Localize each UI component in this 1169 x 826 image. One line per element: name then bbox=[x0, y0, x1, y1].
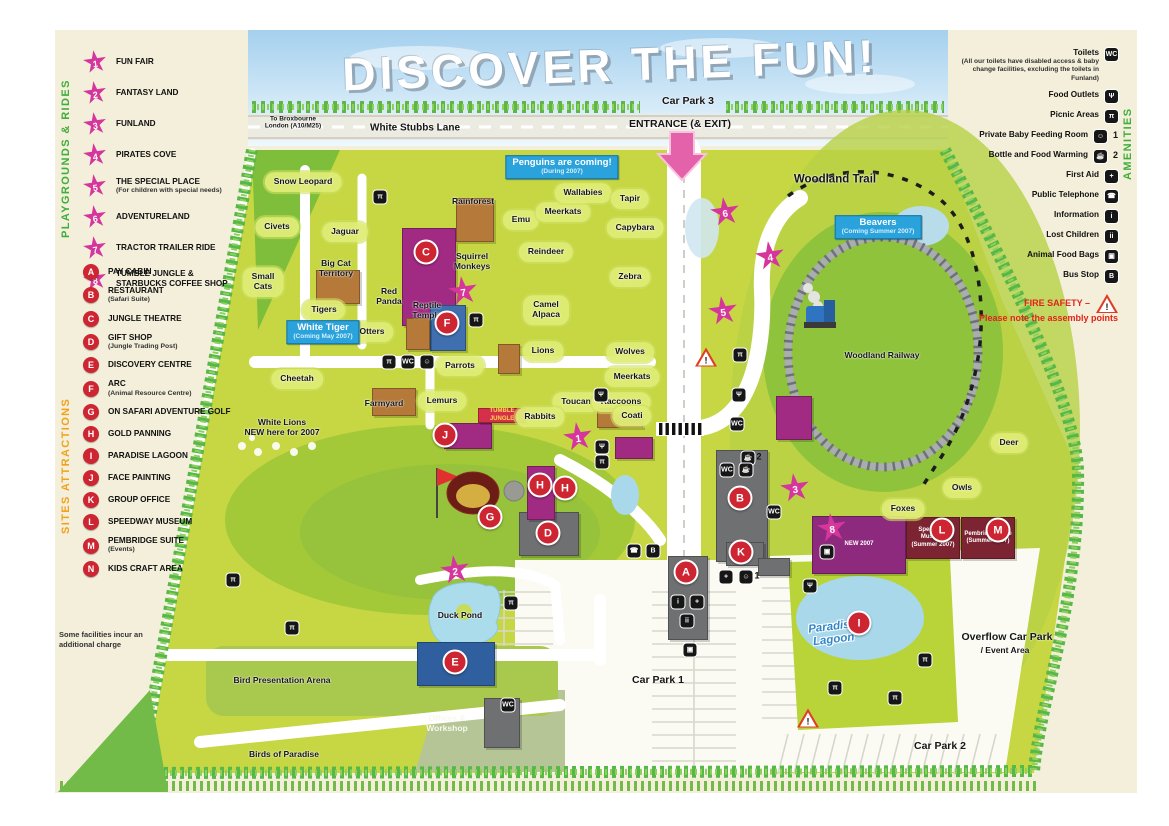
site-marker-d: D bbox=[536, 521, 561, 546]
food-icon: Ψ bbox=[1105, 90, 1118, 103]
map-label-tapir: Tapir bbox=[611, 189, 649, 209]
amenity-label: Picnic Areas bbox=[1050, 110, 1099, 120]
map-label-woodland-trail: Woodland Trail bbox=[794, 173, 876, 186]
toilets-icon: WC bbox=[721, 464, 734, 477]
playground-item-2: 2FANTASY LAND bbox=[83, 81, 243, 105]
map-label-woodland-railway: Woodland Railway bbox=[845, 351, 920, 361]
phone-icon: ☎ bbox=[1105, 190, 1118, 203]
map-label-entrance-exit: ENTRANCE (& EXIT) bbox=[629, 118, 731, 130]
firstaid-icon: + bbox=[720, 571, 733, 584]
playground-item-7: 7TRACTOR TRAILER RIDE bbox=[83, 236, 243, 260]
map-label-emu: Emu bbox=[503, 210, 539, 230]
building-woodland-building bbox=[776, 396, 812, 440]
map-label-lemurs: Lemurs bbox=[418, 391, 467, 411]
lost-icon: ii bbox=[681, 615, 694, 628]
foodbag-icon: ▣ bbox=[1105, 250, 1118, 263]
marker-k-icon: K bbox=[83, 492, 99, 508]
amenity-item-bus-stop: Bus StopB bbox=[948, 270, 1118, 283]
star-2-icon: 2 bbox=[81, 79, 108, 106]
picnic-icon: π bbox=[505, 597, 518, 610]
info-icon: i bbox=[672, 596, 685, 609]
site-label: PAY CABIN bbox=[108, 267, 152, 277]
marker-i-icon: I bbox=[83, 448, 99, 464]
amenity-item-food-outlets: Food OutletsΨ bbox=[948, 90, 1118, 103]
toilets-icon: WC bbox=[402, 356, 415, 369]
marker-l-icon: L bbox=[83, 514, 99, 530]
star-7-icon: 7 bbox=[81, 234, 108, 261]
sites-heading: SITES ATTRACTIONS bbox=[60, 398, 72, 534]
map-label-white-stubbs-lane: White Stubbs Lane bbox=[370, 122, 460, 134]
star-6-icon: 6 bbox=[81, 203, 108, 230]
info-icon: i bbox=[1105, 210, 1118, 223]
picnic-icon: π bbox=[286, 622, 299, 635]
map-label-offices: Offices & Workshop bbox=[426, 714, 467, 734]
site-item-a: APAY CABIN bbox=[83, 264, 243, 280]
map-label-wallabies: Wallabies bbox=[555, 183, 612, 203]
site-label: RESTAURANT (Safari Suite) bbox=[108, 286, 164, 305]
amenity-item-first-aid: First Aid+ bbox=[948, 170, 1118, 183]
map-label-event-area: / Event Area bbox=[981, 646, 1030, 656]
fire-warning-icon: ! bbox=[1096, 294, 1118, 313]
map-label-coati: Coati bbox=[612, 406, 651, 426]
site-item-d: DGIFT SHOP (Jungle Trading Post) bbox=[83, 333, 243, 352]
bus-icon: B bbox=[1105, 270, 1118, 283]
sign-beavers: Beavers(Coming Summer 2007) bbox=[835, 215, 922, 239]
toilets-icon: WC bbox=[502, 699, 515, 712]
marker-c-icon: C bbox=[83, 311, 99, 327]
site-marker-m: M bbox=[986, 518, 1011, 543]
site-label: FACE PAINTING bbox=[108, 473, 171, 483]
amenity-label: Private Baby Feeding Room bbox=[979, 130, 1088, 140]
marker-e-icon: E bbox=[83, 357, 99, 373]
amenity-label: Public Telephone bbox=[1032, 190, 1099, 200]
fire-safety-title: FIRE SAFETY – bbox=[1024, 298, 1090, 308]
picnic-icon: π bbox=[596, 456, 609, 469]
site-label: PEMBRIDGE SUITE (Events) bbox=[108, 536, 184, 555]
firstaid-icon: + bbox=[1105, 170, 1118, 183]
fire-safety-note: FIRE SAFETY –! Please note the assembly … bbox=[948, 294, 1118, 325]
amenity-item-public-telephone: Public Telephone☎ bbox=[948, 190, 1118, 203]
amenity-number: 1 bbox=[1113, 130, 1118, 140]
site-label: ARC (Animal Resource Centre) bbox=[108, 379, 191, 398]
amenities-heading: AMENITIES bbox=[1122, 108, 1134, 181]
playground-item-6: 6ADVENTURELAND bbox=[83, 205, 243, 229]
map-label-meerkats: Meerkats bbox=[605, 367, 660, 387]
map-label-civets: Civets bbox=[255, 217, 299, 237]
chip-number: 2 bbox=[757, 453, 762, 462]
marker-d-icon: D bbox=[83, 334, 99, 350]
map-label-car-park-2: Car Park 2 bbox=[914, 740, 966, 752]
building-reptile-house bbox=[406, 318, 430, 350]
map-label-duck-pond: Duck Pond bbox=[438, 611, 482, 621]
picnic-icon: π bbox=[374, 191, 387, 204]
firstaid-icon: + bbox=[691, 596, 704, 609]
amenity-label: Animal Food Bags bbox=[1027, 250, 1099, 260]
map-label-car-park-1: Car Park 1 bbox=[632, 674, 684, 686]
map-label-white-lions: White Lions NEW here for 2007 bbox=[244, 418, 319, 438]
playground-label: FUNLAND bbox=[116, 119, 156, 129]
playground-label: ADVENTURELAND bbox=[116, 212, 190, 222]
picnic-icon: π bbox=[1105, 110, 1118, 123]
site-marker-a: A bbox=[674, 560, 699, 585]
legend-left: PLAYGROUNDS & RIDES 1FUN FAIR2FANTASY LA… bbox=[57, 42, 247, 772]
site-label: KIDS CRAFT AREA bbox=[108, 564, 183, 574]
star-marker-2: 2 bbox=[438, 553, 472, 587]
map-label-big-cat: Big Cat Territory bbox=[319, 259, 353, 279]
site-label: JUNGLE THEATRE bbox=[108, 314, 182, 324]
site-label: DISCOVERY CENTRE bbox=[108, 360, 192, 370]
site-label: PARADISE LAGOON bbox=[108, 451, 188, 461]
site-item-l: LSPEEDWAY MUSEUM bbox=[83, 514, 243, 530]
marker-g-icon: G bbox=[83, 404, 99, 420]
site-label: GOLD PANNING bbox=[108, 429, 171, 439]
amenity-number: 2 bbox=[1113, 150, 1118, 160]
site-label: ON SAFARI ADVENTURE GOLF bbox=[108, 407, 231, 417]
amenity-item-toilets: Toilets(All our toilets have disabled ac… bbox=[948, 48, 1118, 83]
playground-label: PIRATES COVE bbox=[116, 150, 176, 160]
picnic-icon: π bbox=[734, 349, 747, 362]
star-marker-4: 4 bbox=[753, 239, 787, 273]
site-item-n: NKIDS CRAFT AREA bbox=[83, 561, 243, 577]
marker-a-icon: A bbox=[83, 264, 99, 280]
amenity-label: First Aid bbox=[1066, 170, 1099, 180]
site-item-j: JFACE PAINTING bbox=[83, 470, 243, 486]
amenity-label: Bus Stop bbox=[1063, 270, 1099, 280]
toilets-icon: WC bbox=[1105, 48, 1118, 61]
site-item-c: CJUNGLE THEATRE bbox=[83, 311, 243, 327]
map-label-snow-leopard: Snow Leopard bbox=[265, 172, 342, 192]
playground-item-1: 1FUN FAIR bbox=[83, 50, 243, 74]
map-label-cheetah: Cheetah bbox=[271, 369, 323, 389]
amenities-list: Toilets(All our toilets have disabled ac… bbox=[948, 48, 1118, 290]
site-label: GROUP OFFICE bbox=[108, 495, 170, 505]
map-label-to-broxbourne: To Broxbourne London (A10/M25) bbox=[265, 116, 321, 131]
site-item-e: EDISCOVERY CENTRE bbox=[83, 357, 243, 373]
playground-item-5: 5THE SPECIAL PLACE(For children with spe… bbox=[83, 174, 243, 198]
amenity-item-information: Informationi bbox=[948, 210, 1118, 223]
amenity-item-picnic-areas: Picnic Areasπ bbox=[948, 110, 1118, 123]
map-label-car-park-3: Car Park 3 bbox=[662, 95, 714, 107]
picnic-icon: π bbox=[919, 654, 932, 667]
site-label: SPEEDWAY MUSEUM bbox=[108, 517, 192, 527]
site-marker-c: C bbox=[414, 240, 439, 265]
star-4-icon: 4 bbox=[81, 141, 108, 168]
marker-m-icon: M bbox=[83, 538, 99, 554]
sign-subtitle: (During 2007) bbox=[512, 169, 611, 176]
picnic-icon: π bbox=[383, 356, 396, 369]
map-label-deer: Deer bbox=[991, 433, 1028, 453]
food-icon: Ψ bbox=[596, 441, 609, 454]
star-marker-3: 3 bbox=[778, 471, 812, 505]
building-lions-house bbox=[498, 344, 520, 374]
foodbag-icon: ▣ bbox=[684, 644, 697, 657]
picnic-icon: π bbox=[829, 682, 842, 695]
site-item-m: MPEMBRIDGE SUITE (Events) bbox=[83, 536, 243, 555]
amenity-label: Information bbox=[1054, 210, 1099, 220]
site-marker-i: I bbox=[847, 611, 872, 636]
map-label-parrots: Parrots bbox=[436, 356, 484, 376]
star-3-icon: 3 bbox=[81, 110, 108, 137]
foodbag-icon: ▣ bbox=[821, 546, 834, 559]
baby-icon: ☺1 bbox=[740, 571, 753, 584]
marker-f-icon: F bbox=[83, 381, 99, 397]
site-item-i: IPARADISE LAGOON bbox=[83, 448, 243, 464]
map-label-farmyard: Farmyard bbox=[365, 399, 404, 409]
site-marker-h: H bbox=[553, 476, 578, 501]
amenity-item-lost-children: Lost Childrenii bbox=[948, 230, 1118, 243]
food-icon: Ψ bbox=[733, 389, 746, 402]
sign-white-tiger: White Tiger(Coming May 2007) bbox=[286, 320, 359, 344]
site-item-f: FARC (Animal Resource Centre) bbox=[83, 379, 243, 398]
site-item-b: BRESTAURANT (Safari Suite) bbox=[83, 286, 243, 305]
amenity-item-private-baby-feeding-room: Private Baby Feeding Room☺1 bbox=[948, 130, 1118, 143]
map-label-bird-presentation-arena: Bird Presentation Arena bbox=[234, 676, 331, 686]
sign-penguins-are-coming: Penguins are coming!(During 2007) bbox=[505, 155, 618, 179]
baby-icon: ☺ bbox=[1094, 130, 1107, 143]
site-item-h: HGOLD PANNING bbox=[83, 426, 243, 442]
phone-icon: ☎ bbox=[628, 545, 641, 558]
star-5-icon: 5 bbox=[81, 172, 108, 199]
bus-icon: B bbox=[647, 545, 660, 558]
fire-assembly-icon: ! bbox=[695, 348, 717, 367]
site-item-g: GON SAFARI ADVENTURE GOLF bbox=[83, 404, 243, 420]
marker-b-icon: B bbox=[83, 287, 99, 303]
map-label-squirrel: Squirrel Monkeys bbox=[454, 252, 490, 272]
toilets-icon: WC bbox=[731, 418, 744, 431]
site-marker-f: F bbox=[435, 311, 460, 336]
site-marker-b: B bbox=[728, 486, 753, 511]
picnic-icon: π bbox=[889, 692, 902, 705]
sites-list: APAY CABINBRESTAURANT (Safari Suite)CJUN… bbox=[83, 264, 243, 583]
map-label-overflow-car-park: Overflow Car Park bbox=[961, 631, 1052, 643]
playgrounds-list: 1FUN FAIR2FANTASY LAND3FUNLAND4PIRATES C… bbox=[83, 50, 243, 298]
map-label-zebra: Zebra bbox=[609, 267, 650, 287]
site-marker-e: E bbox=[443, 650, 468, 675]
sign-title: White Tiger bbox=[293, 323, 352, 333]
map-label-wolves: Wolves bbox=[606, 342, 654, 362]
building-funfair-building bbox=[615, 437, 653, 459]
map-label-owls: Owls bbox=[943, 478, 981, 498]
map-label-foxes: Foxes bbox=[882, 499, 925, 519]
food-icon: Ψ bbox=[595, 389, 608, 402]
map-label-reindeer: Reindeer bbox=[519, 242, 573, 262]
sign-title: Beavers bbox=[842, 218, 915, 228]
marker-h-icon: H bbox=[83, 426, 99, 442]
amenity-label: Toilets(All our toilets have disabled ac… bbox=[948, 48, 1099, 83]
amenity-item-animal-food-bags: Animal Food Bags▣ bbox=[948, 250, 1118, 263]
star-marker-1: 1 bbox=[561, 420, 595, 454]
playground-item-3: 3FUNLAND bbox=[83, 112, 243, 136]
site-marker-g: G bbox=[478, 505, 503, 530]
fire-assembly-icon: ! bbox=[797, 709, 819, 728]
playground-item-4: 4PIRATES COVE bbox=[83, 143, 243, 167]
sign-subtitle: (Coming May 2007) bbox=[293, 334, 352, 341]
marker-j-icon: J bbox=[83, 470, 99, 486]
map-label-camel: Camel Alpaca bbox=[523, 295, 569, 325]
amenity-label: Food Outlets bbox=[1049, 90, 1099, 100]
legend-note: Some facilities incur an additional char… bbox=[59, 630, 177, 650]
playground-label: TRACTOR TRAILER RIDE bbox=[116, 243, 215, 253]
site-marker-l: L bbox=[930, 518, 955, 543]
sign-title: Penguins are coming! bbox=[512, 158, 611, 168]
sign-subtitle: (Coming Summer 2007) bbox=[842, 229, 915, 236]
marker-n-icon: N bbox=[83, 561, 99, 577]
playground-label: THE SPECIAL PLACE(For children with spec… bbox=[116, 177, 222, 196]
park-map-page: DISCOVER THE FUN! TUMBLE JUNGLENEW 2007S… bbox=[0, 0, 1169, 826]
map-label-capybara: Capybara bbox=[607, 218, 664, 238]
amenity-label: Bottle and Food Warming bbox=[989, 150, 1088, 160]
star-marker-6: 6 bbox=[708, 195, 742, 229]
lost-icon: ii bbox=[1105, 230, 1118, 243]
playgrounds-heading: PLAYGROUNDS & RIDES bbox=[60, 79, 72, 238]
playground-label: FANTASY LAND bbox=[116, 88, 178, 98]
bottle-icon: ☕ bbox=[740, 464, 753, 477]
map-label-tigers: Tigers bbox=[302, 300, 345, 320]
building-label: NEW 2007 bbox=[843, 540, 874, 549]
fire-safety-text: Please note the assembly points bbox=[948, 313, 1118, 325]
site-marker-k: K bbox=[729, 540, 754, 565]
building-small-store bbox=[758, 558, 790, 576]
map-label-jaguar: Jaguar bbox=[322, 222, 368, 242]
star-1-icon: 1 bbox=[81, 48, 108, 75]
map-label-small: Small Cats bbox=[243, 267, 284, 297]
site-marker-j: J bbox=[433, 423, 458, 448]
amenity-label: Lost Children bbox=[1046, 230, 1099, 240]
playground-label: FUN FAIR bbox=[116, 57, 154, 67]
picnic-icon: π bbox=[470, 314, 483, 327]
bottle-icon: ☕ bbox=[1094, 150, 1107, 163]
legend-right: AMENITIES Toilets(All our toilets have d… bbox=[948, 42, 1136, 372]
map-label-rabbits: Rabbits bbox=[515, 407, 564, 427]
site-item-k: KGROUP OFFICE bbox=[83, 492, 243, 508]
map-label-red: Red Panda bbox=[376, 287, 402, 307]
chip-number: 1 bbox=[755, 572, 760, 581]
site-marker-h: H bbox=[528, 473, 553, 498]
map-label-meerkats: Meerkats bbox=[536, 202, 591, 222]
map-label-rainforest: Rainforest bbox=[452, 197, 494, 207]
site-label: GIFT SHOP (Jungle Trading Post) bbox=[108, 333, 177, 352]
map-label-lions: Lions bbox=[523, 341, 564, 361]
amenity-item-bottle-and-food-warming: Bottle and Food Warming☕2 bbox=[948, 150, 1118, 163]
toilets-icon: WC bbox=[768, 506, 781, 519]
map-label-birds-of-paradise: Birds of Paradise bbox=[249, 750, 319, 760]
star-marker-5: 5 bbox=[706, 294, 740, 328]
food-icon: Ψ bbox=[804, 580, 817, 593]
baby-icon: ☺ bbox=[421, 356, 434, 369]
